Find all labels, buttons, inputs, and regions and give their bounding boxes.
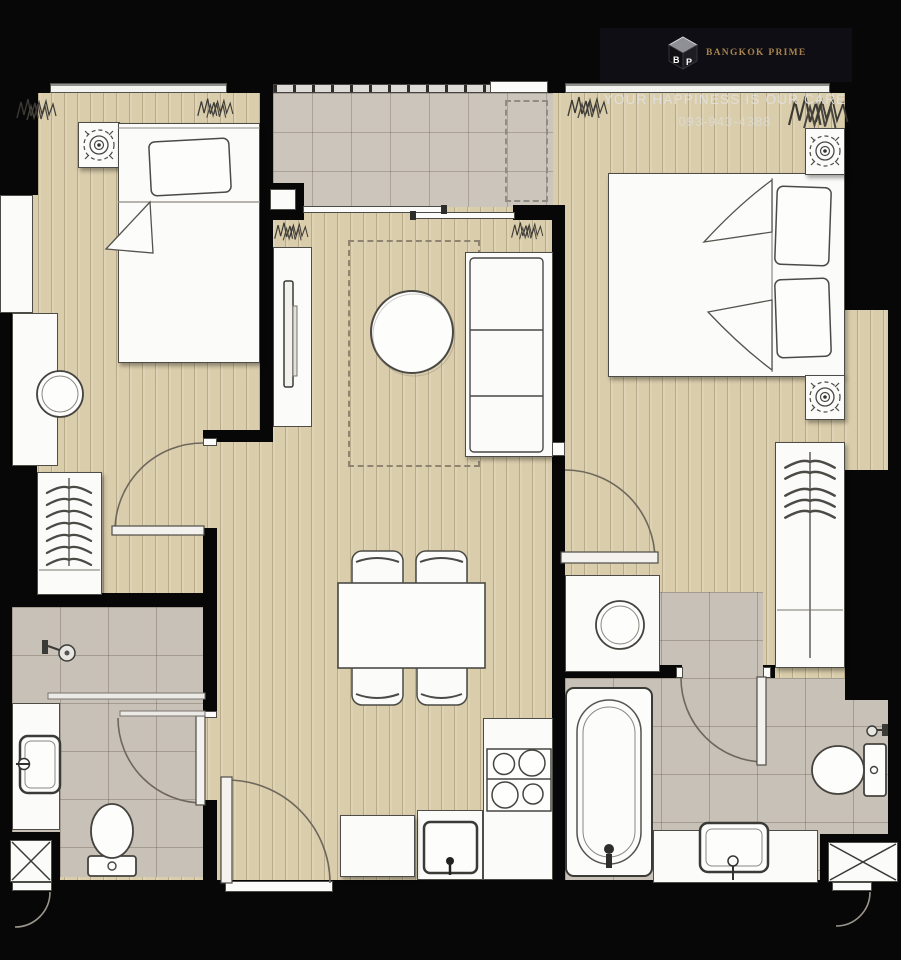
bed-single-detail	[106, 128, 260, 253]
watermark-banner: B P BANGKOK PRIME	[600, 28, 852, 82]
pillow	[775, 278, 832, 358]
bathroom-sink-icon	[700, 823, 768, 880]
floor-plan-canvas: B P BANGKOK PRIME YOUR HAPPINESS IS OUR …	[0, 0, 901, 960]
logo-letter-left: B	[673, 55, 680, 65]
tv-icon	[284, 281, 297, 387]
toilet-icon	[812, 744, 886, 796]
phone-number: 093-943-4388	[560, 114, 890, 129]
dining-table	[338, 583, 485, 668]
sliding-door-handle	[410, 205, 447, 220]
shaft-cross-icon	[830, 844, 896, 880]
shower-head-icon	[867, 724, 888, 736]
shower-head-icon	[42, 640, 75, 661]
toilet-icon	[88, 804, 136, 876]
logo-letter-right: P	[686, 57, 692, 67]
bed-double-detail	[704, 178, 831, 372]
stove-burners-icon	[487, 749, 551, 811]
bathroom-sink-icon	[16, 736, 60, 793]
kitchen-sink-icon	[424, 822, 477, 875]
cube-logo-icon: B P	[664, 34, 702, 72]
brand-name: BANGKOK PRIME	[706, 48, 807, 58]
plan-lineart	[0, 0, 901, 960]
coffee-table	[371, 291, 455, 376]
sofa-cushions	[470, 258, 543, 452]
pillow	[149, 138, 232, 196]
tagline-text: YOUR HAPPINESS IS OUR CARE	[560, 92, 890, 107]
pillow	[775, 186, 832, 266]
bathtub-icon	[566, 688, 652, 876]
shaft-cross-icon	[12, 842, 50, 880]
glass-partition	[48, 693, 205, 716]
